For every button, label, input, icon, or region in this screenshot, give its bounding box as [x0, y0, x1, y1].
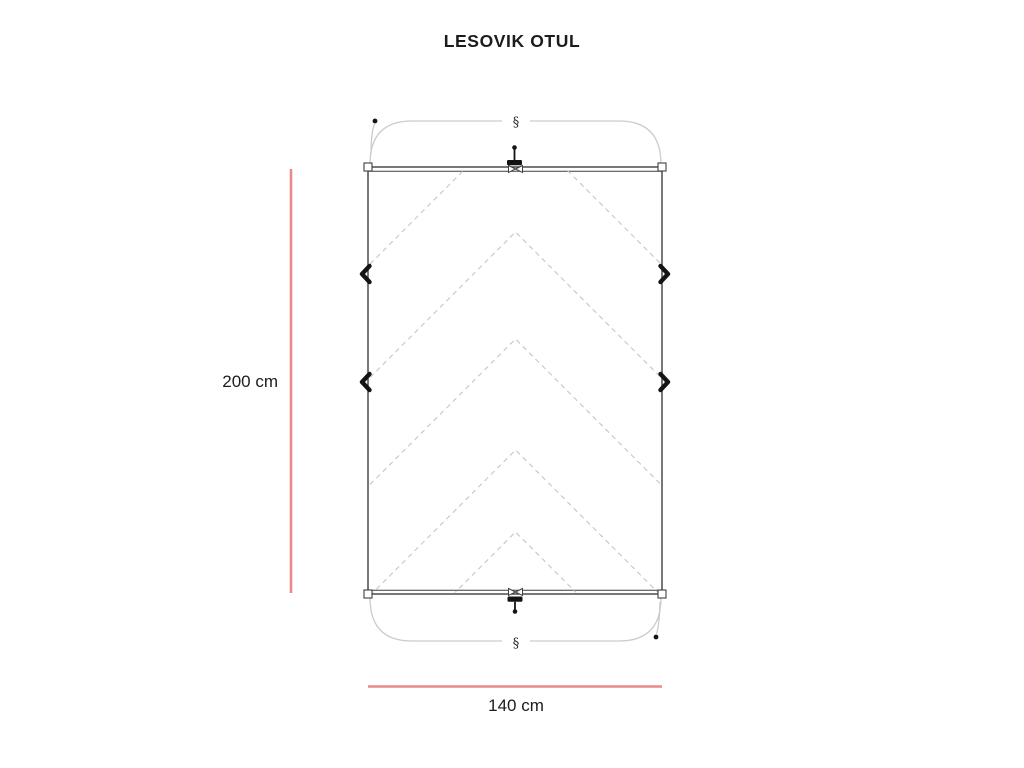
corner-tab — [364, 163, 372, 171]
corner-tab — [364, 590, 372, 598]
cord-tail — [371, 124, 375, 154]
cord-end-dot — [373, 119, 378, 124]
cord-lock-dot — [512, 145, 517, 150]
width-dimension-label: 140 cm — [436, 696, 596, 716]
cord-end-dot — [654, 635, 659, 640]
blanket-diagram: § § — [0, 0, 1024, 768]
elastic-cord-symbol-top: § — [513, 115, 520, 130]
top-cord-lock — [507, 145, 522, 165]
bottom-cord-lock — [508, 597, 523, 614]
diagram-canvas: LESOVIK OTUL § § — [0, 0, 1024, 768]
cord-lock-dot — [513, 609, 518, 614]
cord-lock-icon — [507, 160, 522, 165]
height-dimension-label: 200 cm — [178, 372, 278, 392]
corner-tab — [658, 163, 666, 171]
cord-lock-icon — [508, 597, 523, 602]
blanket-outline — [368, 167, 662, 594]
elastic-cord-symbol-bottom: § — [513, 636, 520, 651]
corner-tab — [658, 590, 666, 598]
